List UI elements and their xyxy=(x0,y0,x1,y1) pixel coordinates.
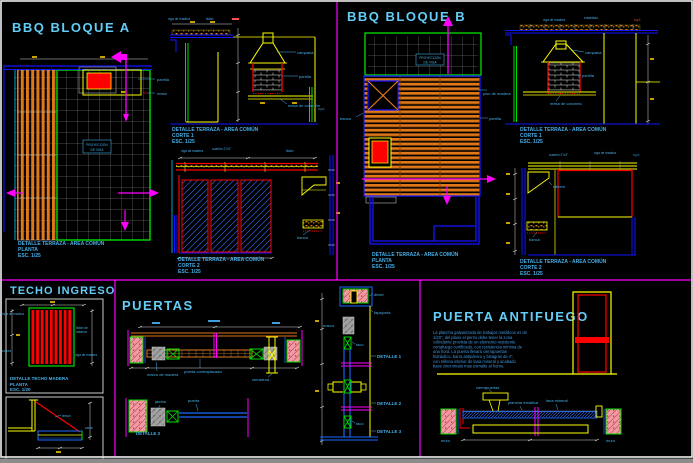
proyeccion-label: PROYECCION xyxy=(86,143,108,147)
svg-text:n.p.t.: n.p.t. xyxy=(633,153,640,157)
svg-text:ESC. 1/25: ESC. 1/25 xyxy=(18,253,41,259)
svg-text:base zincromato mas esmalte al: base zincromato mas esmalte al horno. xyxy=(433,364,504,369)
bbq-a-title: BBQ BLOQUE A xyxy=(12,20,131,35)
bbq-a-corte2-caption: DETALLE TERRAZA - AREA COMÚN xyxy=(178,256,265,263)
svg-text:ESC. 1/25: ESC. 1/25 xyxy=(178,269,201,275)
bbq-a-plan: PROYECCION DE VIGA parrilla mesa DETALLE… xyxy=(3,51,170,259)
svg-text:puerta contraplacada: puerta contraplacada xyxy=(184,369,222,374)
svg-text:taco: taco xyxy=(356,342,364,347)
svg-text:parrilla: parrilla xyxy=(582,73,595,78)
cad-viewport[interactable]: BBQ BLOQUE A PROYECCION xyxy=(0,0,693,463)
cad-drawing[interactable]: BBQ BLOQUE A PROYECCION xyxy=(0,0,693,463)
roof-slats xyxy=(32,310,72,364)
svg-text:marco de madera: marco de madera xyxy=(147,372,179,377)
svg-text:banca: banca xyxy=(340,116,352,121)
svg-text:n.p.t.: n.p.t. xyxy=(318,107,325,111)
svg-text:entablado: entablado xyxy=(584,16,598,20)
svg-text:plancha metálica: plancha metálica xyxy=(508,400,539,405)
svg-text:mesa de concreto: mesa de concreto xyxy=(550,101,583,106)
svg-text:listón: listón xyxy=(286,149,294,153)
svg-text:puerta: puerta xyxy=(188,398,200,403)
svg-text:cerradura: cerradura xyxy=(252,377,270,382)
svg-text:ESC. 1/25: ESC. 1/25 xyxy=(520,271,543,277)
svg-text:madera: madera xyxy=(76,330,87,334)
svg-text:tensor: tensor xyxy=(62,414,72,418)
mesa-label: mesa xyxy=(157,91,168,96)
svg-text:tapajunta: tapajunta xyxy=(374,310,391,315)
svg-text:parrilla: parrilla xyxy=(299,74,312,79)
svg-text:lana mineral: lana mineral xyxy=(546,398,568,403)
techo-caption: DETALLE TECHO MADERA xyxy=(10,376,69,381)
svg-text:DETALLE 2: DETALLE 2 xyxy=(377,401,402,406)
bbq-b-corte2-caption: DETALLE TERRAZA - AREA COMÚN xyxy=(520,258,607,265)
svg-text:viga de madera: viga de madera xyxy=(543,18,565,22)
bbq-a-corte1-caption: DETALLE TERRAZA - AREA COMÚN xyxy=(172,126,259,133)
detalle2-caption: DETALLE 2 xyxy=(136,431,161,436)
svg-text:viga de madera: viga de madera xyxy=(2,312,24,316)
svg-text:cierrapuertas: cierrapuertas xyxy=(476,385,499,390)
bbq-b-corte1-caption: DETALLE TERRAZA - AREA COMÚN xyxy=(520,126,607,133)
svg-text:dintel: dintel xyxy=(374,292,384,297)
svg-text:piso de madera: piso de madera xyxy=(483,91,511,96)
svg-text:n.p.t.: n.p.t. xyxy=(634,18,641,22)
svg-text:campana: campana xyxy=(585,50,602,55)
svg-text:viga de madera: viga de madera xyxy=(594,151,616,155)
svg-text:DETALLE 1: DETALLE 1 xyxy=(377,354,402,359)
svg-text:viga de madera: viga de madera xyxy=(75,353,97,357)
svg-text:muro: muro xyxy=(606,438,616,443)
svg-text:jamba: jamba xyxy=(154,399,167,404)
svg-text:parrilla: parrilla xyxy=(489,116,502,121)
svg-text:muro: muro xyxy=(441,438,451,443)
svg-text:banca: banca xyxy=(529,237,541,242)
svg-text:marco: marco xyxy=(323,323,335,328)
svg-text:PROYECCION: PROYECCION xyxy=(419,56,441,60)
svg-text:tablero: tablero xyxy=(553,184,566,189)
antifuego-title: PUERTA ANTIFUEGO xyxy=(433,309,589,324)
parrilla-label: parrilla xyxy=(157,77,170,82)
svg-text:viga de madera: viga de madera xyxy=(168,17,190,21)
svg-text:viga de madera: viga de madera xyxy=(181,149,203,153)
svg-text:correa: correa xyxy=(2,349,11,353)
svg-text:DE VIGA: DE VIGA xyxy=(91,148,105,152)
svg-text:ESC. 1/25: ESC. 1/25 xyxy=(520,139,543,145)
svg-text:banca: banca xyxy=(297,235,309,240)
svg-text:canal: canal xyxy=(85,426,93,430)
svg-text:mesa de concreto: mesa de concreto xyxy=(288,103,321,108)
status-strip xyxy=(0,459,693,463)
svg-text:cuartón 2"x3": cuartón 2"x3" xyxy=(549,153,568,157)
techo-title: TECHO INGRESO xyxy=(10,285,115,297)
bbq-a-plan-caption: DETALLE TERRAZA - AREA COMÚN xyxy=(18,240,105,247)
svg-text:ESC. 1/20: ESC. 1/20 xyxy=(10,387,31,392)
svg-text:ESC. 1/25: ESC. 1/25 xyxy=(172,139,195,145)
svg-text:DE VIGA: DE VIGA xyxy=(424,61,438,65)
svg-text:listón: listón xyxy=(206,17,214,21)
svg-text:campana: campana xyxy=(297,50,314,55)
svg-text:DETALLE 3: DETALLE 3 xyxy=(377,429,402,434)
bbq-b-plan-caption: DETALLE TERRAZA - AREA COMÚN xyxy=(372,251,459,258)
puertas-title: PUERTAS xyxy=(122,298,194,313)
svg-text:ESC. 1/25: ESC. 1/25 xyxy=(372,264,395,270)
svg-text:cuartón 2"x3": cuartón 2"x3" xyxy=(212,147,231,151)
svg-text:taco: taco xyxy=(356,421,364,426)
